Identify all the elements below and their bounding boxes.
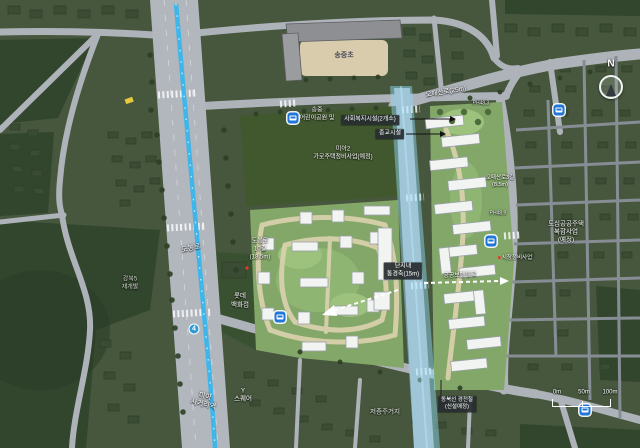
public-walkway-label: 공공보행통로 (443, 272, 476, 280)
scale-start-label: 0m (553, 390, 561, 397)
gangbuk5-label-line1: 강북5 (123, 277, 137, 284)
opaesan-3gil-label-line2: (8.5m) (492, 182, 508, 188)
dosim-label-line2: 복합사업 (554, 228, 578, 235)
dobong-10gil-label-line1: 도봉로 (252, 239, 269, 246)
ph-marker-b: PH48.9 (490, 211, 507, 217)
scale-mid-label: 50m (578, 390, 590, 397)
bus-stop-icon (486, 236, 497, 247)
map-base-art (0, 0, 640, 448)
childrens-park-label-line2: 어린이공원 및 (300, 116, 335, 123)
y-square-label-line2: 스퀘어 (234, 395, 252, 402)
childrens-park-label-line1: 송중 (311, 108, 322, 115)
bus-stop-icon (288, 113, 299, 124)
lotte-label-line1: 롯데 (234, 292, 246, 299)
mia2-label-line2: 가로주택정비사업(예정) (313, 155, 372, 162)
compass-n-label: N (607, 59, 614, 70)
mia2-label-line1: 미아2 (336, 147, 350, 154)
school-label: 송중초 (334, 52, 353, 60)
dosim-label-line1: 도심공공주택 (548, 220, 584, 227)
ph-marker-a: PH48.3 (473, 101, 490, 107)
bus-stop-icon (554, 105, 565, 116)
view-corridor-line1: 단지내 (387, 264, 419, 272)
dongbuk-line2: (신설예정) (441, 404, 473, 411)
subway-line4-badge-icon: 4 (189, 324, 200, 335)
y-square-label-line1: Y (241, 387, 245, 394)
lotte-label-line2: 백화점 (231, 301, 249, 308)
religious-facility-badge: 종교시설 (376, 129, 404, 139)
dobong-10gil-label-line2: 10길 (254, 247, 266, 254)
market-label: 시장정비사업 (498, 255, 532, 261)
bus-stop-icon (275, 312, 286, 323)
scale-end-label: 100m (602, 390, 617, 397)
north-arrow-icon (599, 75, 623, 99)
market-marker-icon (498, 256, 501, 259)
dosim-label-line3: (예정) (558, 236, 574, 243)
lowrise-label: 저층주거지 (370, 408, 400, 415)
site-plan-map: 송중초 송중 어린이공원 및 사회복지시설(2개소) 종교시설 미아2 가로주택… (0, 0, 640, 448)
scale-bar (552, 399, 611, 407)
dobong-10gil-label-line3: (18.5m) (250, 255, 271, 262)
dongbuk-line-badge: 동북선 경전철 (신설예정) (438, 396, 476, 412)
welfare-facility-badge: 사회복지시설(2개소) (341, 115, 399, 125)
dongbuk-line1: 동북선 경전철 (441, 397, 473, 404)
view-corridor-line2: 통경축(15m) (387, 271, 419, 279)
view-corridor-badge: 단지내 통경축(15m) (384, 263, 422, 280)
opaesan-3gil-label-line1: 오패산로3길 (486, 175, 514, 181)
gangbuk5-label-line2: 재개발 (122, 285, 139, 292)
